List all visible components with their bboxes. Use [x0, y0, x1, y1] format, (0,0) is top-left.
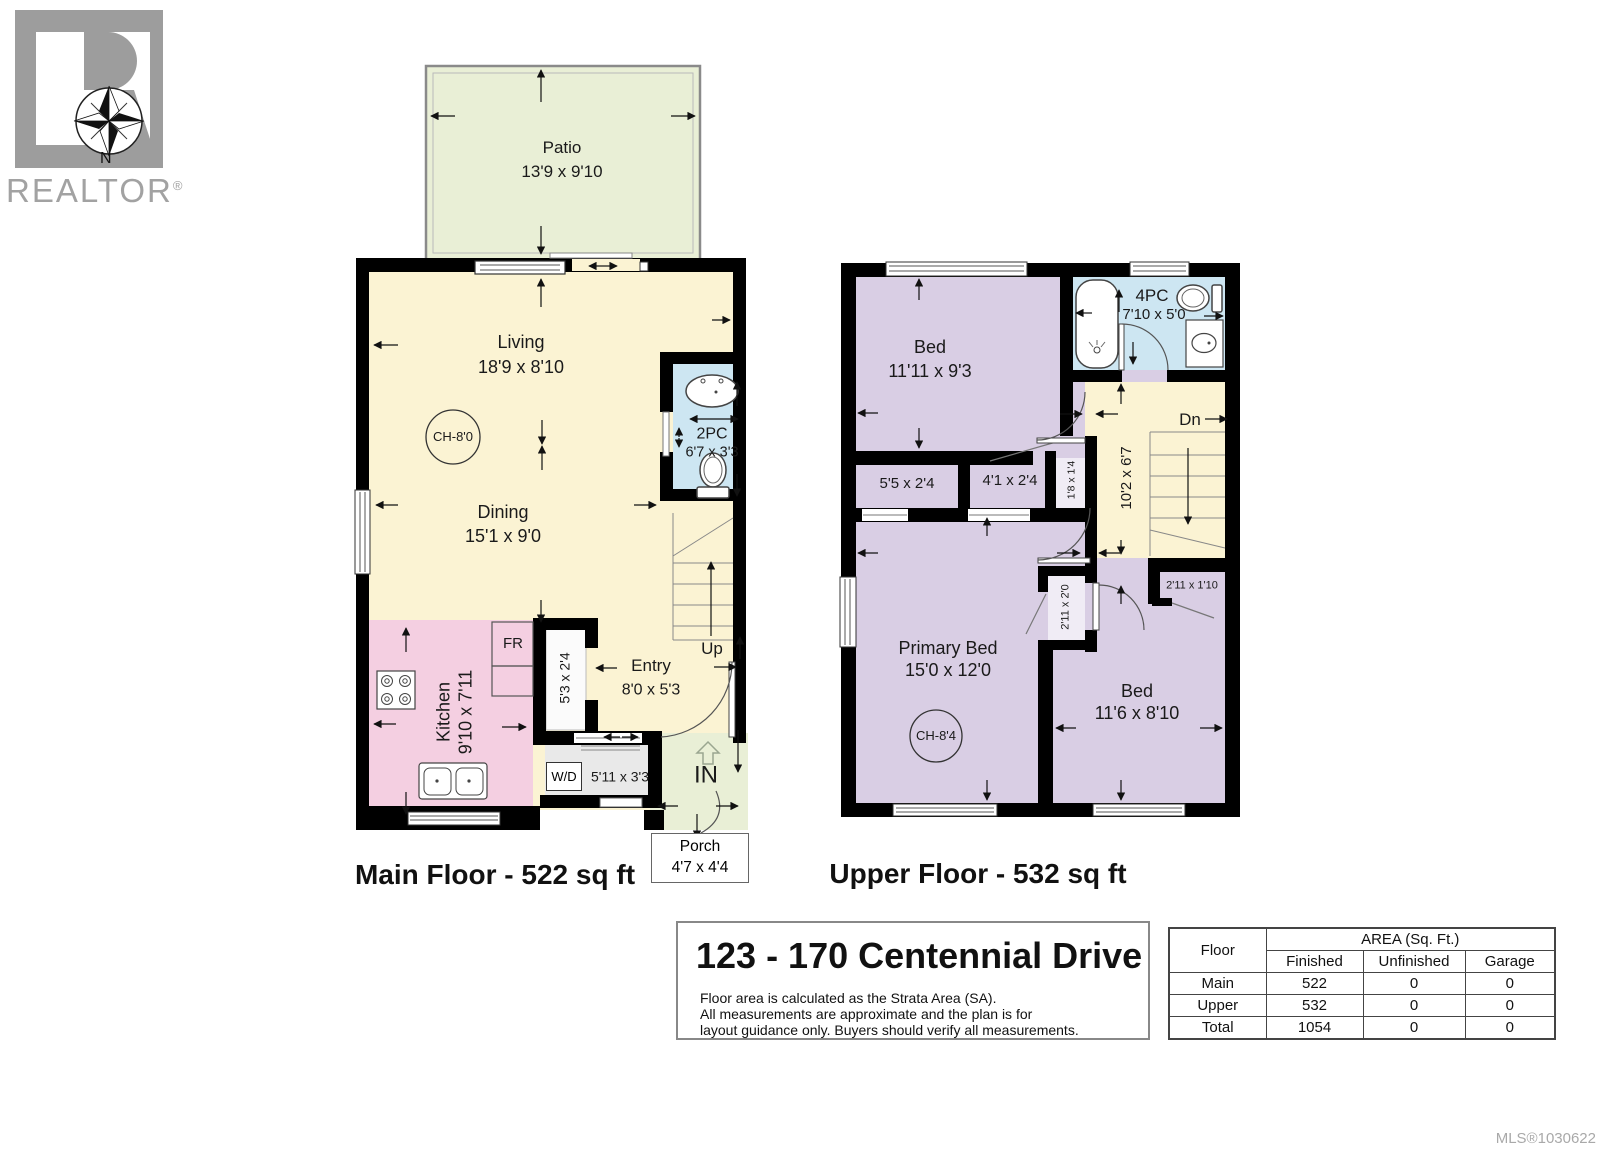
table-header-floor: Floor: [1169, 928, 1266, 973]
disclaimer-line: All measurements are approximate and the…: [700, 1006, 1032, 1022]
entry-label: Entry: [631, 656, 671, 676]
vanity-sink-icon: [1186, 320, 1223, 367]
primary-bed-label: Primary Bed: [898, 638, 997, 660]
window-icon: [355, 490, 370, 574]
entry-closet-dims: 5'3 x 2'4: [557, 652, 574, 703]
primary-bed-dims: 15'0 x 12'0: [905, 660, 991, 682]
stove-icon: [377, 671, 415, 709]
kitchen-label: Kitchen 9'10 x 7'11: [433, 670, 476, 755]
powder-room-dims: 6'7 x 3'3: [685, 444, 738, 461]
kitchen-sink-icon: [419, 763, 487, 799]
closet3-dims: 1'8 x 1'4: [1066, 461, 1079, 499]
living-label: Living: [497, 332, 544, 354]
mls-number: MLS®1030622: [1380, 1130, 1596, 1147]
main-bath-label: 4PC: [1135, 286, 1168, 306]
table-header-garage: Garage: [1465, 951, 1555, 973]
bed1-label: Bed: [914, 337, 946, 359]
porch-label-box: Porch 4'7 x 4'4: [651, 833, 749, 883]
upper-floor-plan: [840, 262, 1240, 817]
patio-door-opening: [572, 259, 640, 271]
disclaimer-line: Floor area is calculated as the Strata A…: [700, 990, 996, 1006]
closet1-dims: 5'5 x 2'4: [880, 475, 935, 493]
table-row: Main 522 0 0: [1169, 973, 1555, 995]
bathtub-icon: [1076, 280, 1118, 368]
realtor-wordmark: REALTOR®: [6, 172, 184, 210]
stairs-down-label: Dn: [1179, 410, 1201, 430]
fridge-label: FR: [503, 635, 523, 653]
floor-plan-sheet: REALTOR® N Patio 13'9 x 9'10 Living 18'9…: [0, 0, 1600, 1155]
dining-dims: 15'1 x 9'0: [465, 526, 541, 548]
main-bath-dims: 7'10 x 5'0: [1122, 306, 1185, 324]
area-table: Floor AREA (Sq. Ft.) Finished Unfinished…: [1168, 927, 1556, 1040]
main-floor-caption: Main Floor - 522 sq ft: [355, 858, 635, 892]
ceiling-height-main: CH-8'0: [433, 429, 473, 445]
disclaimer-line: layout guidance only. Buyers should veri…: [700, 1022, 1079, 1038]
dining-label: Dining: [477, 502, 528, 524]
table-row: Total 1054 0 0: [1169, 1017, 1555, 1040]
patio-label: Patio: [543, 138, 582, 158]
window-icon: [408, 812, 500, 825]
bed2-label: Bed: [1121, 681, 1153, 703]
table-header-unfinished: Unfinished: [1363, 951, 1465, 973]
bed1-dims: 11'11 x 9'3: [888, 361, 971, 383]
north-label: N: [100, 150, 112, 168]
washer-dryer-label: W/D: [546, 762, 582, 791]
closet2-dims: 4'1 x 2'4: [983, 472, 1038, 490]
stairs-up-label: Up: [701, 639, 723, 659]
address-info-box: 123 - 170 Centennial Drive Floor area is…: [676, 921, 1150, 1040]
hall-dims: 10'2 x 6'7: [1118, 446, 1136, 509]
bed2-dims: 11'6 x 8'10: [1095, 703, 1180, 725]
upper-floor-caption: Upper Floor - 532 sq ft: [829, 857, 1126, 891]
living-dims: 18'9 x 8'10: [478, 357, 564, 379]
powder-room-label: 2PC: [696, 424, 727, 443]
laundry-dims: 5'11 x 3'3: [591, 769, 649, 786]
patio-dims: 13'9 x 9'10: [521, 162, 602, 182]
closet4-dims: 2'11 x 2'0: [1059, 584, 1072, 630]
bath-door-icon: [663, 412, 669, 456]
table-header-finished: Finished: [1266, 951, 1363, 973]
table-header-area: AREA (Sq. Ft.): [1266, 928, 1555, 951]
table-row: Upper 532 0 0: [1169, 995, 1555, 1017]
address-title: 123 - 170 Centennial Drive: [696, 935, 1142, 977]
entry-dims: 8'0 x 5'3: [622, 680, 681, 699]
closet5-dims: 2'11 x 1'10: [1166, 579, 1218, 592]
sink-icon: [686, 375, 738, 407]
in-label: IN: [694, 762, 718, 791]
laundry-vent: [600, 798, 642, 807]
ceiling-height-upper: CH-8'4: [916, 728, 956, 744]
